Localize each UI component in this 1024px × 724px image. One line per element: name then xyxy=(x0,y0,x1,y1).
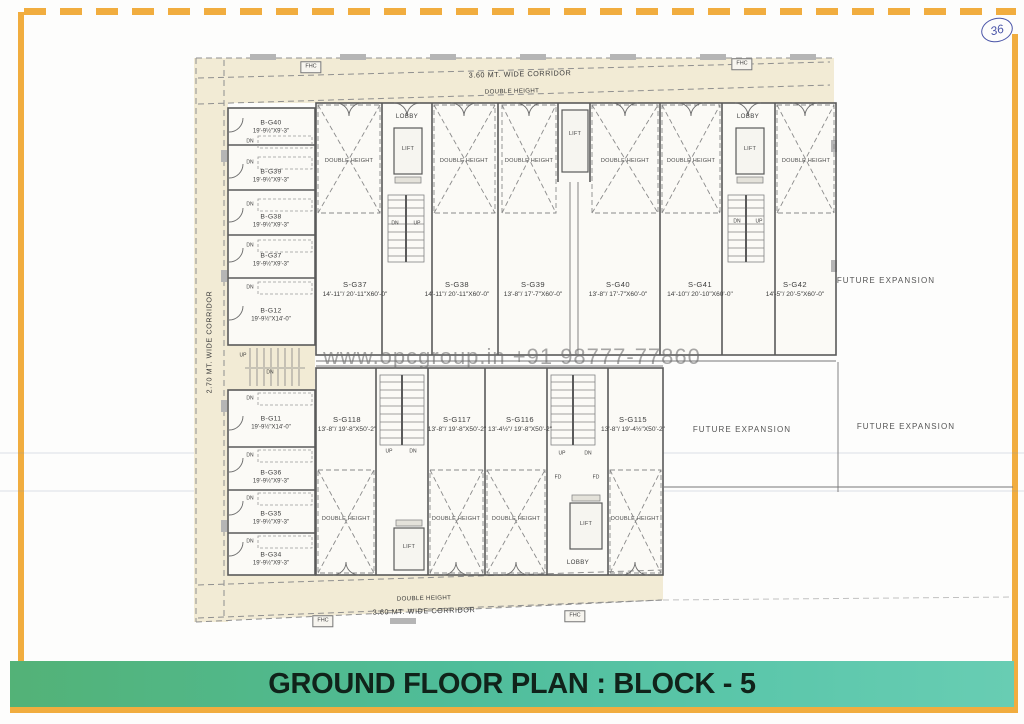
unit-id: S-G39 xyxy=(504,280,562,289)
room-dims: 19'-9½"X9'-3" xyxy=(253,129,289,135)
up-label: UP xyxy=(414,222,421,227)
unit-dims: 13'-8"/ 17'-7"X60'-0" xyxy=(504,291,562,298)
future-expansion-label-3: FUTURE EXPANSION xyxy=(857,423,955,431)
dn-label: DN xyxy=(266,371,273,376)
future-expansion-label-2: FUTURE EXPANSION xyxy=(693,426,791,434)
room-id: B-G37 xyxy=(253,253,289,260)
room-label: B-G40 19'-9½"X9'-3" xyxy=(253,120,289,135)
up-label: UP xyxy=(240,354,247,359)
fhc-box-top-left: FHC xyxy=(300,61,321,73)
room-dims: 19'-9½"X9'-3" xyxy=(253,223,289,229)
double-height-label: DOUBLE HEIGHT xyxy=(667,159,715,165)
room-id: B-G34 xyxy=(253,552,289,559)
unit-dims: 14'-10"/ 20'-10"X60'-0" xyxy=(667,291,733,298)
dn-label: DN xyxy=(733,220,740,225)
room-dims: 19'-9½"X9'-3" xyxy=(253,262,289,268)
double-height-label: DOUBLE HEIGHT xyxy=(611,517,659,523)
dn-label: DN xyxy=(246,454,253,459)
lobby-label: LOBBY xyxy=(737,114,759,120)
dn-label: DN xyxy=(246,286,253,291)
title-bar-underline xyxy=(10,707,1014,713)
dn-label: DN xyxy=(246,244,253,249)
room-dims: 19'-9½"X9'-3" xyxy=(253,178,289,184)
room-dims: 19'-9½"X9'-3" xyxy=(253,520,289,526)
corridor-bottom-double-height-label: DOUBLE HEIGHT xyxy=(397,595,452,603)
scanned-floor-plan-sheet: 36 xyxy=(0,0,1024,724)
up-label: UP xyxy=(756,220,763,225)
unit-label: S-G42 14'-5"/ 20'-5"X60'-0" xyxy=(766,280,824,298)
plan-title: GROUND FLOOR PLAN : BLOCK - 5 xyxy=(268,668,756,701)
double-height-label: DOUBLE HEIGHT xyxy=(505,159,553,165)
corridor-bottom-label: 3.60 MT. WIDE CORRIDOR xyxy=(373,606,476,616)
title-bar: GROUND FLOOR PLAN : BLOCK - 5 xyxy=(10,661,1014,707)
unit-dims: 13'-4½"/ 19'-8"X50'-2" xyxy=(488,426,552,433)
double-height-label: DOUBLE HEIGHT xyxy=(440,159,488,165)
room-label: B-G38 19'-9½"X9'-3" xyxy=(253,214,289,229)
dn-label: DN xyxy=(246,203,253,208)
unit-dims: 14'-11"/ 20'-11"X60'-0" xyxy=(323,291,388,298)
fd-label: FD xyxy=(555,476,562,481)
corridor-top-label: 3.60 MT. WIDE CORRIDOR xyxy=(469,69,572,79)
lift-label: LIFT xyxy=(402,147,414,153)
unit-label: S-G116 13'-4½"/ 19'-8"X50'-2" xyxy=(488,415,552,433)
unit-id: S-G38 xyxy=(425,280,490,289)
unit-label: S-G115 13'-8"/ 19'-4½"X50'-2" xyxy=(601,415,665,433)
room-label: B-G35 19'-9½"X9'-3" xyxy=(253,511,289,526)
room-id: B-G40 xyxy=(253,120,289,127)
dn-label: DN xyxy=(584,452,591,457)
up-label: UP xyxy=(386,450,393,455)
unit-label: S-G117 13'-8"/ 19'-8"X50'-2" xyxy=(428,415,486,433)
room-id: B-G39 xyxy=(253,169,289,176)
double-height-label: DOUBLE HEIGHT xyxy=(322,517,370,523)
unit-dims: 13'-8"/ 19'-8"X50'-2" xyxy=(318,426,376,433)
unit-label: S-G118 13'-8"/ 19'-8"X50'-2" xyxy=(318,415,376,433)
dn-label: DN xyxy=(246,497,253,502)
room-id: B-G12 xyxy=(251,308,291,315)
unit-dims: 13'-8"/ 17'-7"X60'-0" xyxy=(589,291,647,298)
unit-label: S-G39 13'-8"/ 17'-7"X60'-0" xyxy=(504,280,562,298)
unit-id: S-G118 xyxy=(318,415,376,424)
unit-id: S-G117 xyxy=(428,415,486,424)
up-label: UP xyxy=(559,452,566,457)
lift-label: LIFT xyxy=(569,132,581,138)
unit-dims: 13'-8"/ 19'-4½"X50'-2" xyxy=(601,426,665,433)
future-expansion-label-1: FUTURE EXPANSION xyxy=(837,277,935,285)
unit-label: S-G40 13'-8"/ 17'-7"X60'-0" xyxy=(589,280,647,298)
unit-label: S-G37 14'-11"/ 20'-11"X60'-0" xyxy=(323,280,388,298)
dn-label: DN xyxy=(246,161,253,166)
room-dims: 19'-9½"X14'-0" xyxy=(251,317,291,323)
lift-label: LIFT xyxy=(744,147,756,153)
double-height-label: DOUBLE HEIGHT xyxy=(492,517,540,523)
lift-label: LIFT xyxy=(403,545,415,551)
unit-id: S-G116 xyxy=(488,415,552,424)
room-dims: 19'-9½"X9'-3" xyxy=(253,561,289,567)
lobby-label: LOBBY xyxy=(567,560,589,566)
room-id: B-G36 xyxy=(253,470,289,477)
unit-id: S-G37 xyxy=(323,280,388,289)
corridor-top-double-height-label: DOUBLE HEIGHT xyxy=(485,88,540,96)
unit-dims: 13'-8"/ 19'-8"X50'-2" xyxy=(428,426,486,433)
fd-label: FD xyxy=(593,476,600,481)
double-height-label: DOUBLE HEIGHT xyxy=(782,159,830,165)
dn-label: DN xyxy=(246,397,253,402)
unit-id: S-G41 xyxy=(667,280,733,289)
double-height-label: DOUBLE HEIGHT xyxy=(432,517,480,523)
lift-label: LIFT xyxy=(580,522,592,528)
unit-label: S-G38 14'-11"/ 20'-11"X60'-0" xyxy=(425,280,490,298)
lobby-label: LOBBY xyxy=(396,114,418,120)
watermark: www.opcgroup.in +91 98777-77860 xyxy=(323,344,701,370)
fhc-box-bottom-right: FHC xyxy=(564,610,585,622)
double-height-label: DOUBLE HEIGHT xyxy=(325,159,373,165)
room-label: B-G12 19'-9½"X14'-0" xyxy=(251,308,291,323)
dn-label: DN xyxy=(246,140,253,145)
room-label: B-G37 19'-9½"X9'-3" xyxy=(253,253,289,268)
room-label: B-G11 19'-9½"X14'-0" xyxy=(251,416,291,431)
dn-label: DN xyxy=(391,222,398,227)
unit-dims: 14'-5"/ 20'-5"X60'-0" xyxy=(766,291,824,298)
unit-dims: 14'-11"/ 20'-11"X60'-0" xyxy=(425,291,490,298)
unit-label: S-G41 14'-10"/ 20'-10"X60'-0" xyxy=(667,280,733,298)
dn-label: DN xyxy=(246,540,253,545)
room-id: B-G11 xyxy=(251,416,291,423)
fhc-box-top-right: FHC xyxy=(731,58,752,70)
double-height-label: DOUBLE HEIGHT xyxy=(601,159,649,165)
room-id: B-G38 xyxy=(253,214,289,221)
room-label: B-G36 19'-9½"X9'-3" xyxy=(253,470,289,485)
room-id: B-G35 xyxy=(253,511,289,518)
room-dims: 19'-9½"X9'-3" xyxy=(253,479,289,485)
dn-label: DN xyxy=(409,450,416,455)
fhc-box-bottom-left: FHC xyxy=(312,615,333,627)
room-label: B-G34 19'-9½"X9'-3" xyxy=(253,552,289,567)
unit-id: S-G115 xyxy=(601,415,665,424)
unit-id: S-G40 xyxy=(589,280,647,289)
corridor-left-label: 2.70 MT. WIDE CORRIDOR xyxy=(205,291,212,394)
unit-id: S-G42 xyxy=(766,280,824,289)
room-dims: 19'-9½"X14'-0" xyxy=(251,425,291,431)
room-label: B-G39 19'-9½"X9'-3" xyxy=(253,169,289,184)
